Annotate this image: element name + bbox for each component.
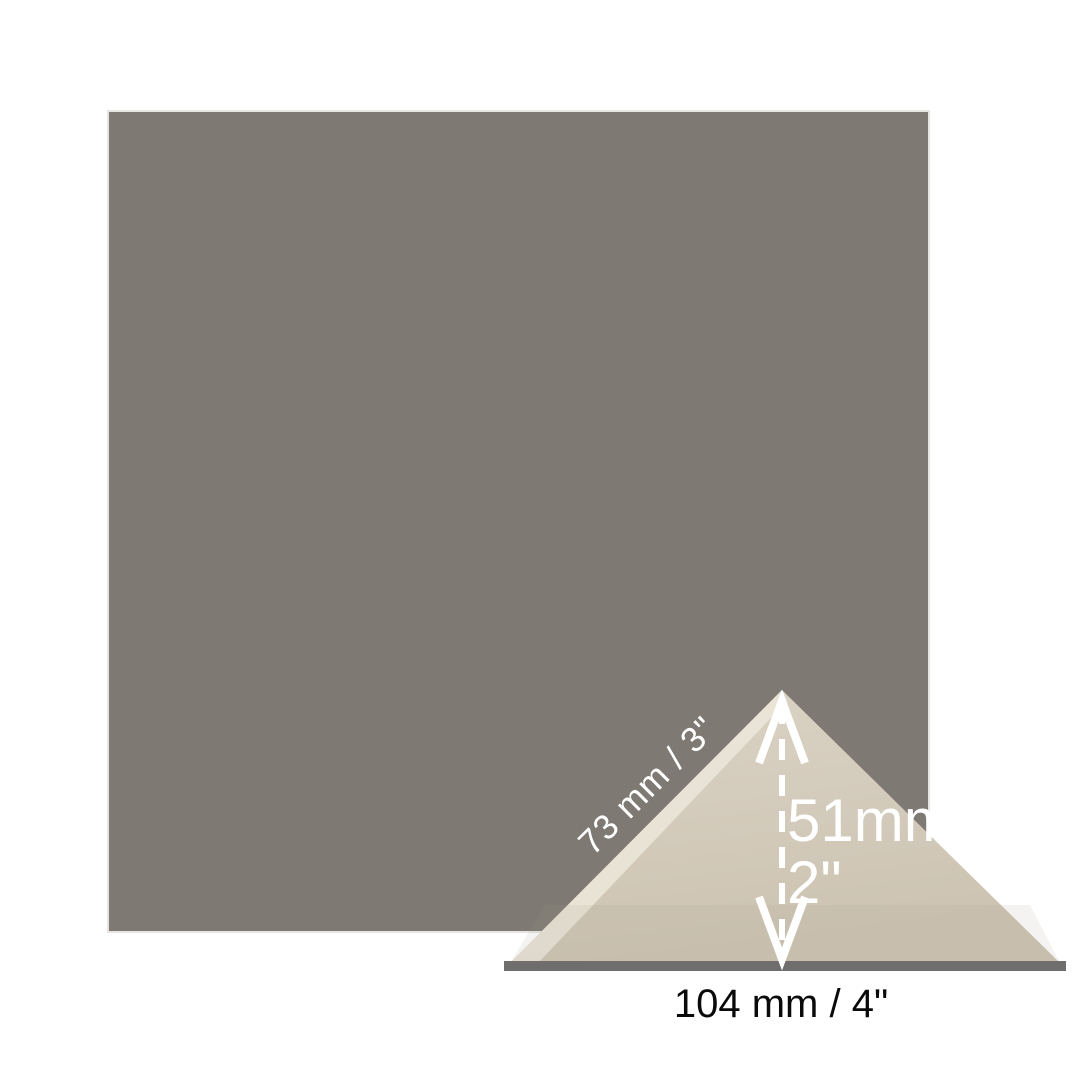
height-dimension-label: 51mm 2" <box>787 790 954 914</box>
tile-base-edge <box>504 961 1066 971</box>
diagram-canvas <box>0 0 1080 1080</box>
height-dimension-inches: 2" <box>787 852 954 914</box>
base-dimension-label: 104 mm / 4" <box>674 982 888 1027</box>
height-dimension-mm: 51mm <box>787 790 954 852</box>
product-dimension-image: 73 mm / 3" 51mm 2" 104 mm / 4" <box>0 0 1080 1080</box>
